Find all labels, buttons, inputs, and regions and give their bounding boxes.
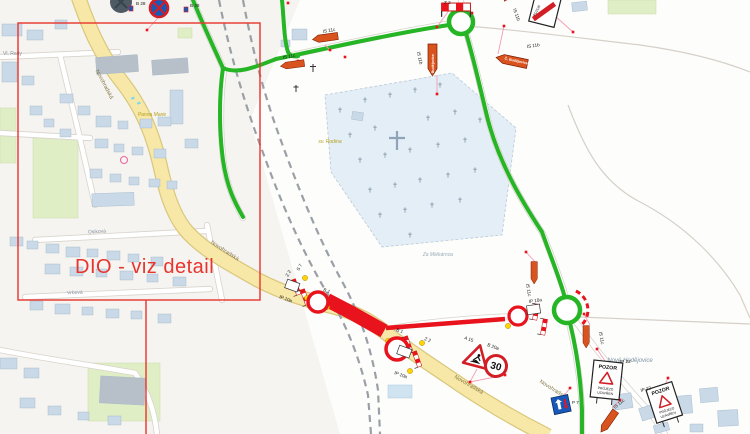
street-label: Vrbová (67, 290, 83, 297)
detour-arrow-text: Č. Budějovice (430, 54, 435, 78)
street-label: Vl. Rady (3, 51, 22, 57)
sign-label: B 28 (190, 3, 200, 8)
detour-arrow-is11c (531, 262, 537, 284)
mini-sign-icon (184, 7, 188, 12)
place-label: Panna Marie (138, 112, 167, 118)
roundabout-north (449, 10, 473, 34)
mini-sign-icon (129, 6, 133, 11)
sign-label: B 28 (136, 1, 146, 6)
pond (388, 385, 412, 398)
detour-map: Novohradská Novohradská Novohradská Novo… (0, 0, 750, 434)
cemetery-chapel (351, 111, 363, 120)
no-stopping-sign-b28 (150, 0, 168, 17)
roundabout-south (554, 297, 580, 323)
sign-label: IP 22 (620, 359, 631, 364)
priority-sign-p7 (551, 394, 571, 414)
place-label: Za Mlékárnou (422, 252, 454, 258)
no-entry-sign-b1 (509, 307, 527, 325)
street-label: Osiková (88, 229, 107, 236)
no-entry-sign-b1 (308, 292, 328, 312)
map-canvas: Novohradská Novohradská Novohradská Novo… (0, 0, 750, 434)
detour-arrow-is11c (583, 326, 589, 348)
detail-note: DIO - viz detail (75, 256, 214, 278)
sign-label: Z 2 (444, 0, 451, 5)
sign-label: P 7 (572, 400, 579, 405)
place-label: sv. Rodina (318, 139, 341, 145)
